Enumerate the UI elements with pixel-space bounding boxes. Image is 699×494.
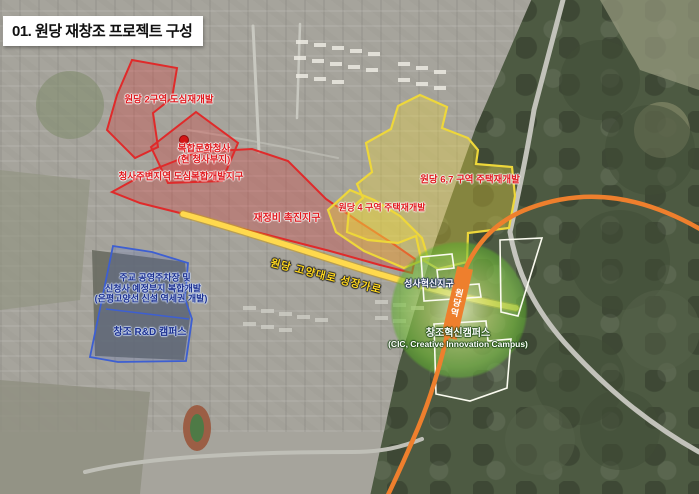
- label-promotion-district: 재정비 촉진지구: [253, 214, 320, 224]
- label-cityhall-line2: (현 청사부지): [178, 155, 231, 165]
- page-title-text: 01. 원당 재창조 프로젝트 구성: [12, 23, 192, 40]
- label-seongsa-district: 성사혁신지구: [404, 280, 454, 289]
- map-canvas: 원당역 원당 2구역 도심재개발 복합문화청사 (현 청사부지) 청사주변지역 …: [0, 0, 699, 494]
- label-jugyo-line3: (은평고양선 신설 역세권 개발): [95, 295, 208, 304]
- apartment-blocks: [294, 40, 446, 90]
- label-rnd-campus: 창조 R&D 캠퍼스: [113, 328, 186, 338]
- label-around-cityhall: 청사주변지역 도심복합개발지구: [119, 172, 244, 182]
- page-title: 01. 원당 재창조 프로젝트 구성: [3, 16, 203, 46]
- label-wondang67: 원당 6,7 구역 주택재개발: [420, 175, 520, 185]
- label-cityhall-line1: 복합문화청사: [178, 144, 230, 154]
- label-wondang4: 원당 4 구역 주택재개발: [338, 204, 425, 213]
- map-overlay: [0, 0, 699, 494]
- label-cic-line1: 창조혁신캠퍼스: [426, 329, 490, 339]
- label-wondang2: 원당 2구역 도심재개발: [124, 95, 213, 105]
- label-cic-line2: (CIC, Creative Innovation Campus): [388, 340, 528, 349]
- label-jugyo-line1: 주교 공영주차장 및: [119, 274, 190, 283]
- label-jugyo-line2: 신청사 예정부지 복합개발: [105, 285, 201, 294]
- stadium: [183, 405, 211, 451]
